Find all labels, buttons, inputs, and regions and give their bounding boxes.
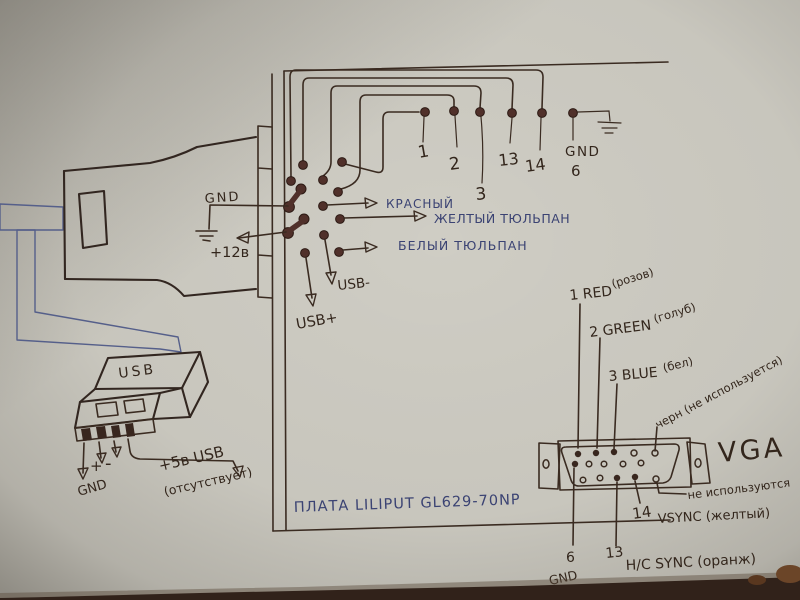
top-gnd-label: GND bbox=[565, 144, 600, 160]
pin13-label: 13 bbox=[497, 149, 519, 170]
table-stain bbox=[748, 575, 766, 585]
vga-pin14-label: 14 bbox=[631, 502, 652, 522]
vga-pin6-label: 6 bbox=[566, 550, 575, 566]
left-gnd-label: GND bbox=[204, 190, 241, 207]
rca-white-label: БЕЛЫЙ ТЮЛЬПАН bbox=[398, 238, 528, 253]
usb-plus-sign: + bbox=[90, 457, 103, 475]
wiring-diagram: 1 2 3 13 14 GND 6 GND +12в USB- USB+ USB… bbox=[0, 0, 800, 600]
vga-title: VGA bbox=[717, 432, 786, 469]
photo-of-hand-drawn-wiring-diagram: 1 2 3 13 14 GND 6 GND +12в USB- USB+ USB… bbox=[0, 0, 800, 600]
rca-yellow-label: ЖЕЛТЫЙ ТЮЛЬПАН bbox=[434, 211, 570, 226]
pin14-label: 14 bbox=[524, 154, 547, 176]
rca-red-label: КРАСНЫЙ bbox=[386, 196, 454, 211]
v12-label: +12в bbox=[210, 245, 249, 261]
usb-minus-label: USB- bbox=[337, 275, 371, 294]
pin3-label: 3 bbox=[475, 184, 488, 205]
vga-pin13-label: 13 bbox=[605, 544, 624, 562]
top-pin6-label: 6 bbox=[571, 162, 581, 180]
usb-minus-sign: - bbox=[105, 453, 112, 474]
